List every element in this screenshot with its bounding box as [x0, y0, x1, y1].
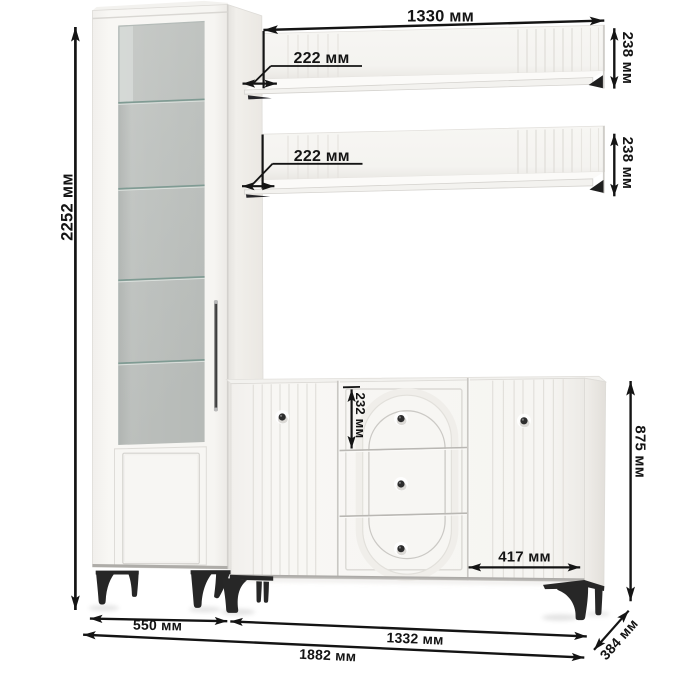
svg-text:222 мм: 222 мм [293, 50, 349, 67]
svg-text:238 мм: 238 мм [619, 137, 636, 190]
svg-text:417 мм: 417 мм [498, 548, 551, 565]
svg-text:1882 мм: 1882 мм [299, 646, 357, 665]
svg-text:1330 мм: 1330 мм [407, 8, 474, 26]
svg-text:1332 мм: 1332 мм [386, 629, 444, 647]
svg-text:222 мм: 222 мм [294, 148, 350, 165]
svg-text:238 мм: 238 мм [619, 32, 636, 85]
svg-text:232 мм: 232 мм [353, 393, 368, 439]
svg-text:550 мм: 550 мм [133, 616, 182, 633]
svg-text:875 мм: 875 мм [632, 425, 649, 478]
svg-text:2252 мм: 2252 мм [59, 173, 77, 241]
